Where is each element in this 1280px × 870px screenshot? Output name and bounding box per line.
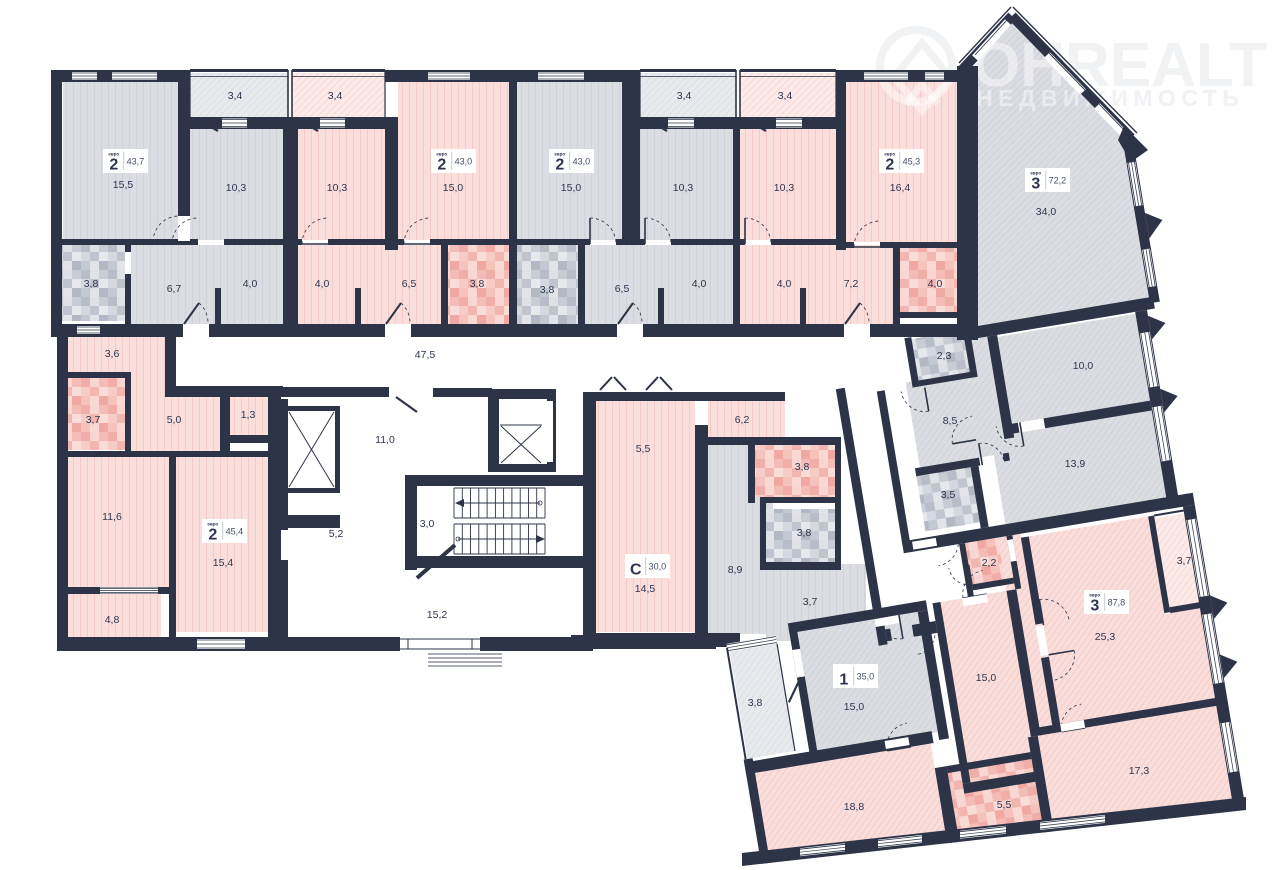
svg-text:35,0: 35,0 — [857, 672, 875, 682]
svg-text:8,9: 8,9 — [728, 564, 743, 576]
svg-text:30,0: 30,0 — [649, 562, 667, 572]
svg-text:45,4: 45,4 — [226, 527, 244, 537]
svg-text:2: 2 — [555, 157, 564, 174]
svg-text:18,8: 18,8 — [844, 801, 865, 813]
svg-text:3,4: 3,4 — [677, 90, 692, 102]
svg-text:3,5: 3,5 — [941, 489, 956, 501]
svg-text:10,3: 10,3 — [774, 182, 795, 194]
svg-text:34,0: 34,0 — [1036, 206, 1057, 218]
svg-text:3,8: 3,8 — [470, 278, 485, 290]
svg-text:47,5: 47,5 — [415, 349, 436, 361]
svg-text:10,0: 10,0 — [1073, 360, 1094, 372]
svg-text:3,6: 3,6 — [105, 348, 120, 360]
svg-text:3,7: 3,7 — [803, 596, 818, 608]
svg-text:3,7: 3,7 — [1177, 555, 1192, 567]
svg-text:4,0: 4,0 — [243, 278, 258, 290]
svg-text:3,8: 3,8 — [797, 527, 812, 539]
svg-text:2: 2 — [437, 157, 446, 174]
svg-text:3,4: 3,4 — [778, 90, 793, 102]
svg-text:1: 1 — [839, 672, 848, 689]
svg-text:3,4: 3,4 — [228, 90, 243, 102]
svg-text:2,2: 2,2 — [982, 557, 997, 569]
svg-text:3,4: 3,4 — [328, 90, 343, 102]
svg-text:4,0: 4,0 — [692, 278, 707, 290]
svg-text:3,8: 3,8 — [795, 461, 810, 473]
svg-text:11,0: 11,0 — [375, 434, 395, 446]
svg-text:1,3: 1,3 — [241, 409, 256, 421]
svg-text:7,2: 7,2 — [844, 278, 859, 290]
svg-text:15,4: 15,4 — [213, 557, 234, 569]
svg-text:10,3: 10,3 — [327, 182, 348, 194]
svg-text:4,0: 4,0 — [928, 278, 943, 290]
svg-text:4,0: 4,0 — [315, 278, 330, 290]
svg-text:3,8: 3,8 — [84, 278, 99, 290]
svg-text:43,0: 43,0 — [573, 157, 591, 167]
svg-text:87,8: 87,8 — [1108, 598, 1126, 608]
svg-text:45,3: 45,3 — [903, 157, 921, 167]
svg-text:17,3: 17,3 — [1129, 765, 1150, 777]
svg-text:15,0: 15,0 — [976, 672, 997, 684]
svg-text:15,0: 15,0 — [844, 701, 865, 713]
svg-text:4,8: 4,8 — [105, 614, 120, 626]
svg-text:8,5: 8,5 — [943, 415, 958, 427]
svg-text:3,8: 3,8 — [748, 697, 763, 709]
svg-text:3,0: 3,0 — [420, 518, 435, 530]
svg-text:13,9: 13,9 — [1065, 458, 1086, 470]
svg-text:25,3: 25,3 — [1095, 631, 1116, 643]
svg-text:15,0: 15,0 — [561, 182, 582, 194]
svg-text:5,5: 5,5 — [636, 443, 651, 455]
svg-text:72,2: 72,2 — [1049, 176, 1067, 186]
svg-text:2: 2 — [109, 157, 118, 174]
svg-text:3,8: 3,8 — [540, 284, 555, 296]
svg-text:НЕДВИЖИМОСТЬ: НЕДВИЖИМОСТЬ — [976, 85, 1244, 111]
svg-text:6,2: 6,2 — [735, 414, 750, 426]
svg-text:6,5: 6,5 — [402, 278, 417, 290]
svg-text:6,5: 6,5 — [615, 283, 630, 295]
svg-text:16,4: 16,4 — [890, 182, 911, 194]
svg-text:3,7: 3,7 — [86, 414, 101, 426]
svg-text:3: 3 — [1031, 176, 1040, 193]
svg-text:2: 2 — [885, 157, 894, 174]
svg-text:5,0: 5,0 — [167, 414, 182, 426]
svg-text:10,3: 10,3 — [673, 182, 694, 194]
svg-text:С: С — [630, 562, 642, 579]
svg-text:4,0: 4,0 — [777, 278, 792, 290]
svg-text:15,5: 15,5 — [113, 179, 134, 191]
svg-text:3: 3 — [1090, 598, 1099, 615]
svg-text:11,6: 11,6 — [102, 511, 122, 523]
svg-text:2,3: 2,3 — [937, 350, 952, 362]
svg-text:5,2: 5,2 — [329, 528, 344, 540]
svg-text:2: 2 — [208, 527, 217, 544]
svg-text:43,0: 43,0 — [455, 157, 473, 167]
svg-text:15,2: 15,2 — [427, 609, 448, 621]
svg-text:10,3: 10,3 — [226, 182, 247, 194]
svg-text:6,7: 6,7 — [167, 283, 182, 295]
svg-text:14,5: 14,5 — [635, 583, 656, 595]
svg-text:43,7: 43,7 — [127, 157, 145, 167]
svg-text:15,0: 15,0 — [443, 182, 464, 194]
svg-text:5,5: 5,5 — [997, 799, 1012, 811]
